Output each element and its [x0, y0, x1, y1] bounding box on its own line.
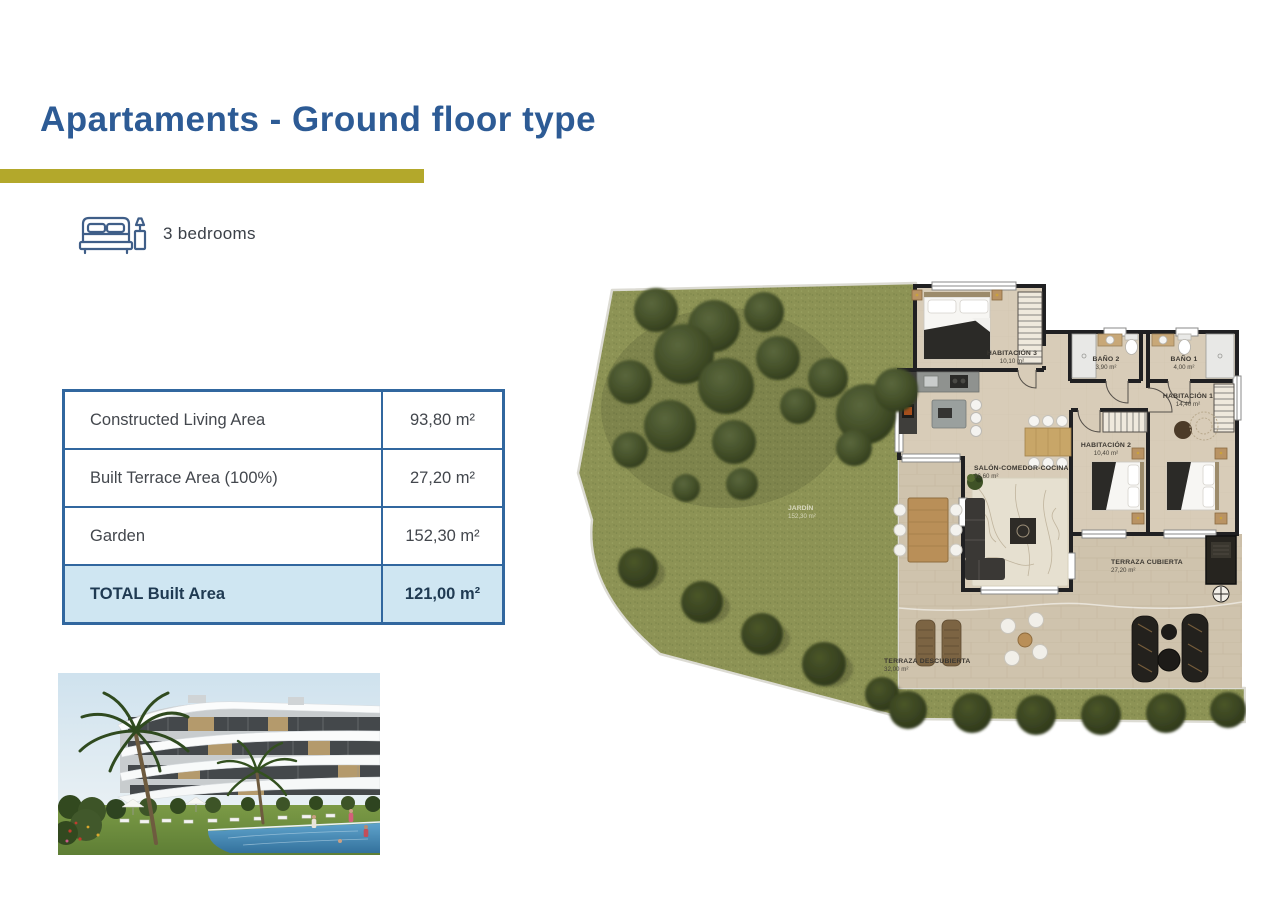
label-habitacion-3-area: 10,10 m²	[1000, 358, 1024, 365]
label-salon: SALÓN-COMEDOR-COCINA	[974, 463, 1069, 472]
row-value: 93,80 m²	[383, 392, 502, 448]
label-terraza-cubierta-area: 27,20 m²	[1111, 567, 1135, 574]
bedrooms-row: 3 bedrooms	[75, 211, 256, 257]
brochure-page: Apartaments - Ground floor type 3 bedroo…	[0, 0, 1280, 905]
row-value: 27,20 m²	[383, 450, 502, 506]
row-value: 121,00 m²	[383, 566, 502, 622]
label-habitacion-1-area: 14,40 m²	[1176, 401, 1200, 408]
label-terraza-cubierta: TERRAZA CUBIERTA	[1111, 559, 1183, 566]
label-habitacion-1: HABITACIÓN 1	[1163, 391, 1213, 400]
building-photo	[58, 673, 380, 855]
area-table: Constructed Living Area 93,80 m² Built T…	[62, 389, 505, 625]
label-bano-2-area: 3,90 m²	[1096, 364, 1117, 371]
label-jardin-area: 152,30 m²	[788, 513, 816, 520]
row-value: 152,30 m²	[383, 508, 502, 564]
floor-plan: HABITACIÓN 3 10,10 m² BAÑO 2 3,90 m² BAÑ…	[566, 258, 1246, 738]
label-bano-1-area: 4,00 m²	[1174, 364, 1195, 371]
table-row-total: TOTAL Built Area 121,00 m²	[65, 564, 502, 622]
dining-furniture	[1025, 416, 1071, 469]
row-label: Constructed Living Area	[65, 392, 383, 448]
row-label: TOTAL Built Area	[65, 566, 383, 622]
label-bano-1: BAÑO 1	[1171, 354, 1198, 363]
table-row: Garden 152,30 m²	[65, 506, 502, 564]
label-salon-area: 36,60 m²	[974, 473, 998, 480]
table-row: Built Terrace Area (100%) 27,20 m²	[65, 448, 502, 506]
label-habitacion-3: HABITACIÓN 3	[987, 348, 1037, 357]
label-terraza-descubierta: TERRAZA DESCUBIERTA	[884, 658, 971, 665]
label-terraza-descubierta-area: 32,00 m²	[884, 666, 908, 673]
accent-bar	[0, 169, 424, 183]
label-jardin: JARDÍN	[788, 503, 813, 512]
page-title: Apartaments - Ground floor type	[40, 100, 596, 140]
label-bano-2: BAÑO 2	[1093, 354, 1120, 363]
label-habitacion-2-area: 10,40 m²	[1094, 450, 1118, 457]
label-habitacion-2: HABITACIÓN 2	[1081, 440, 1131, 449]
table-row: Constructed Living Area 93,80 m²	[65, 392, 502, 448]
row-label: Built Terrace Area (100%)	[65, 450, 383, 506]
bedrooms-label: 3 bedrooms	[163, 224, 256, 244]
row-label: Garden	[65, 508, 383, 564]
lounge-furniture	[965, 474, 1068, 586]
bed-icon	[75, 211, 149, 257]
photo-building	[118, 695, 380, 803]
